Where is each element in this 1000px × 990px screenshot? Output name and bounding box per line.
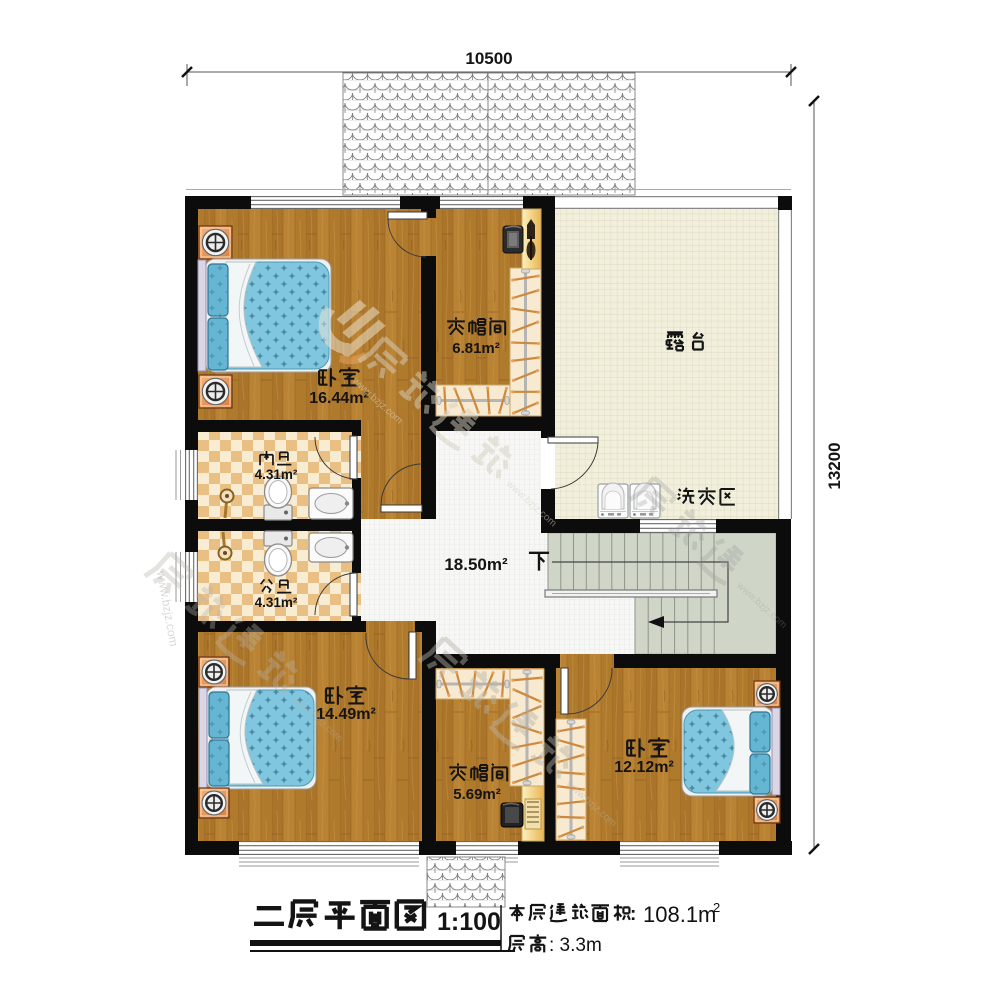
svg-text:6.81m²: 6.81m² <box>452 340 500 357</box>
svg-text:108.1m: 108.1m <box>643 902 716 927</box>
svg-text:2: 2 <box>713 900 720 915</box>
svg-text:1:100: 1:100 <box>437 908 501 936</box>
svg-text:10500: 10500 <box>465 49 512 68</box>
svg-text:4.31m²: 4.31m² <box>255 467 298 482</box>
svg-text:18.50m²: 18.50m² <box>444 555 508 574</box>
svg-text:12.12m²: 12.12m² <box>614 759 674 776</box>
svg-text:: 3.3m: : 3.3m <box>549 935 602 956</box>
svg-text:5.69m²: 5.69m² <box>453 786 501 803</box>
svg-text:4.31m²: 4.31m² <box>255 595 298 610</box>
svg-text:13200: 13200 <box>825 442 844 489</box>
svg-text::: : <box>630 904 636 925</box>
